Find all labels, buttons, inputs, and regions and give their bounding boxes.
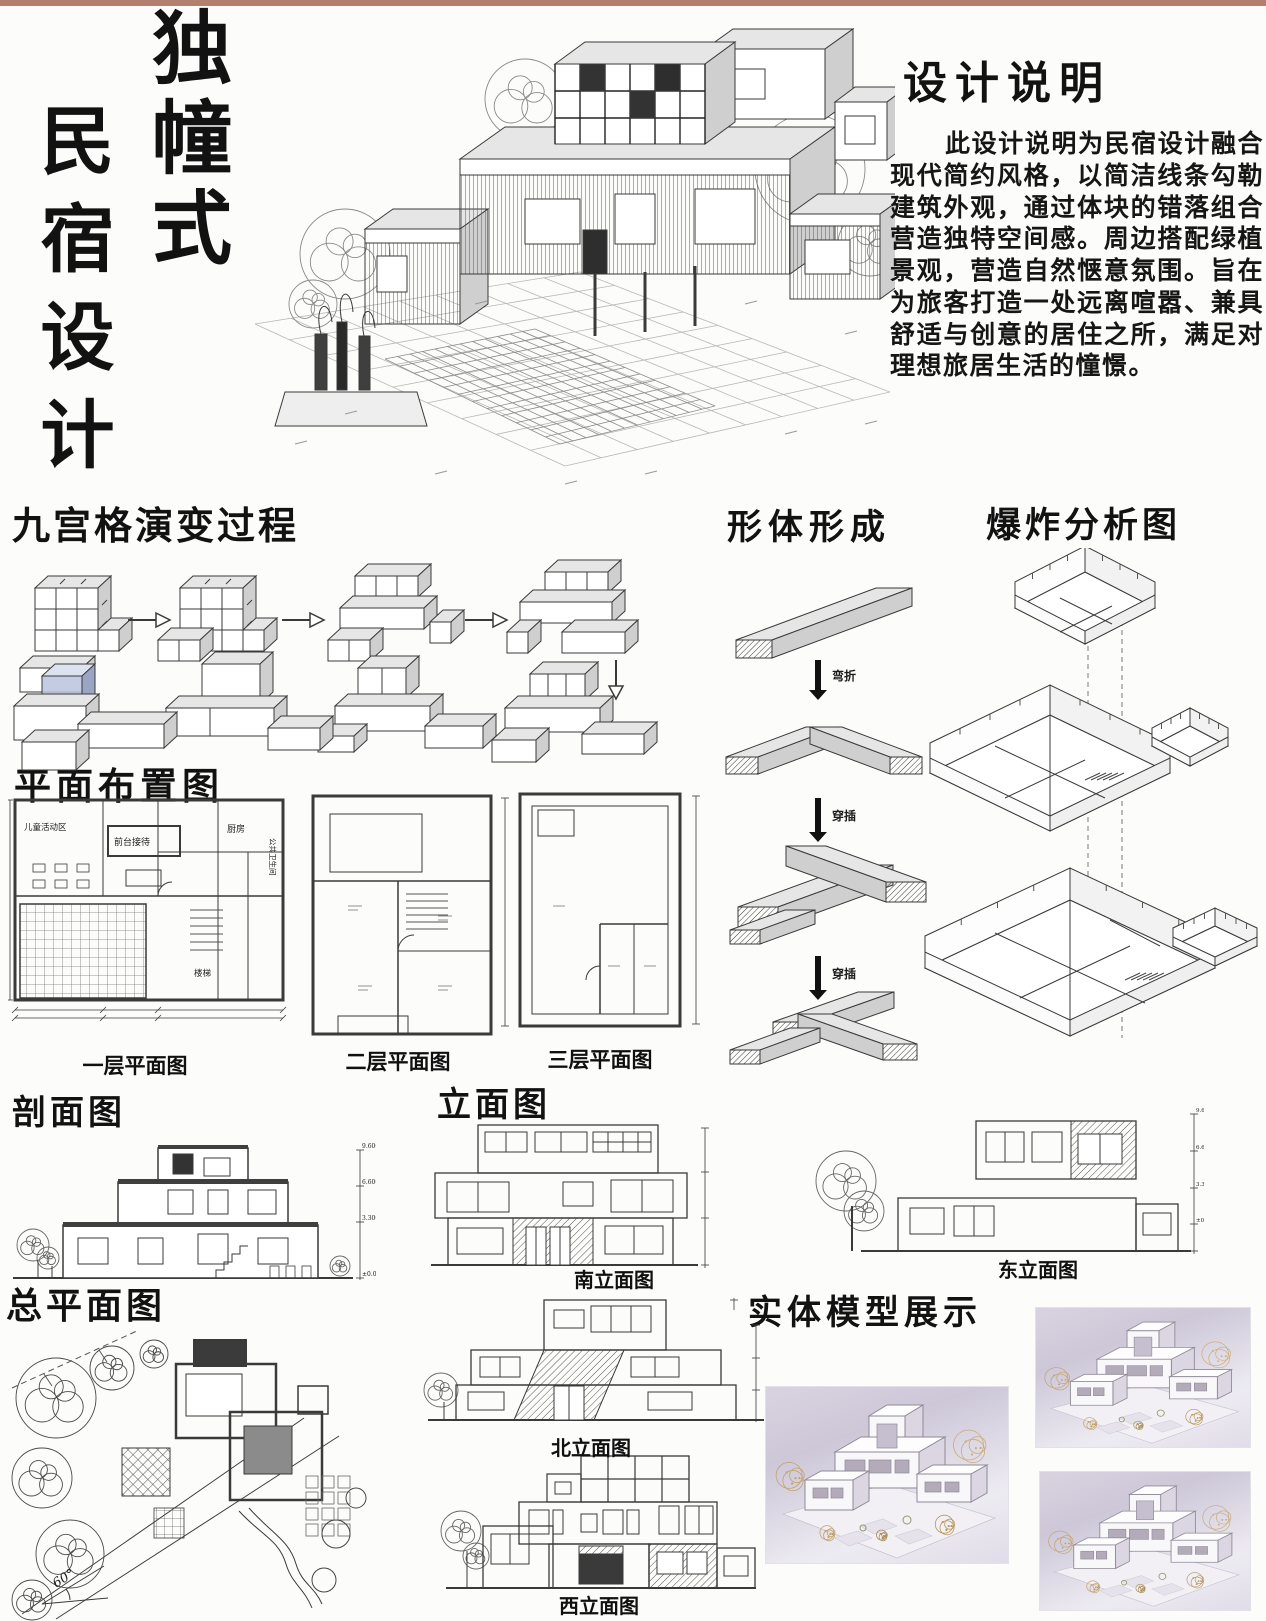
section-level-label: 3.300 [362,1215,376,1222]
design-notes-body: 此设计说明为民宿设计融合现代简约风格，以简洁线条勾勒建筑外观，通过体块的错落组合… [890,128,1264,382]
room-label-reception: 前台接待 [114,836,150,848]
section-level-label: ±0.000 [362,1271,376,1278]
form-formation-diagram: 弯折穿插穿插 [718,552,930,1067]
form-step-label-1: 弯折 [832,668,856,683]
caption-plan-1: 一层平面图 [70,1050,200,1080]
form-step-label-2: 穿插 [832,808,856,823]
section-drawing: 9.6006.6003.300±0.000 [8,1130,376,1298]
site-plan-drawing: 60° [4,1326,374,1621]
caption-east-elevation: 东立面图 [968,1254,1108,1283]
section-level-label: 6.600 [362,1179,376,1186]
model-photo-top-right [1035,1307,1251,1448]
exploded-heading: 爆炸分析图 [986,508,1181,543]
east-level-label: 6.600 [1196,1145,1204,1151]
model-photo-large [765,1386,1009,1564]
caption-plan-2: 二层平面图 [336,1046,460,1076]
room-label-wc: 公共卫生间 [268,838,278,876]
floor-plans-drawing: 儿童活动区前台接待厨房公共卫生间楼梯 [8,786,708,1086]
room-label-stairs: 楼梯 [194,968,212,979]
model-display-heading: 实体模型展示 [748,1296,982,1330]
east-level-label: 3.300 [1196,1182,1204,1188]
room-label-kids: 儿童活动区 [24,822,67,833]
form-step-label-3: 穿插 [832,966,856,981]
north-elevation-drawing [416,1290,774,1450]
east-level-label: 9.600 [1196,1108,1204,1114]
section-heading: 剖面图 [12,1096,126,1130]
caption-west-elevation: 西立面图 [544,1590,654,1619]
caption-south-elevation: 南立面图 [552,1264,676,1293]
east-level-label: ±0.000 [1196,1218,1204,1224]
poster: 独幢式 民宿设计 设计说明 此设计说明为民宿设计融合现代简约风格，以简洁线条勾勒… [0,0,1266,1621]
perspective-sketch [225,4,895,504]
page-subtitle: 民宿设计 [34,102,108,494]
caption-north-elevation: 北立面图 [536,1432,646,1461]
design-notes-heading: 设计说明 [903,62,1111,106]
grid-evolution-heading: 九宫格演变过程 [12,507,299,545]
caption-plan-3: 三层平面图 [538,1044,662,1074]
grid-evolution-diagram [10,556,690,786]
form-formation-heading: 形体形成 [727,510,891,545]
east-elevation-drawing: 9.6006.6003.300±0.000 [806,1086,1204,1281]
exploded-axon-diagram [900,548,1266,1073]
room-label-kitchen: 厨房 [227,823,245,835]
model-photo-bottom-right [1039,1471,1251,1611]
section-level-label: 9.600 [362,1143,376,1150]
page-title: 独幢式 [146,6,226,276]
